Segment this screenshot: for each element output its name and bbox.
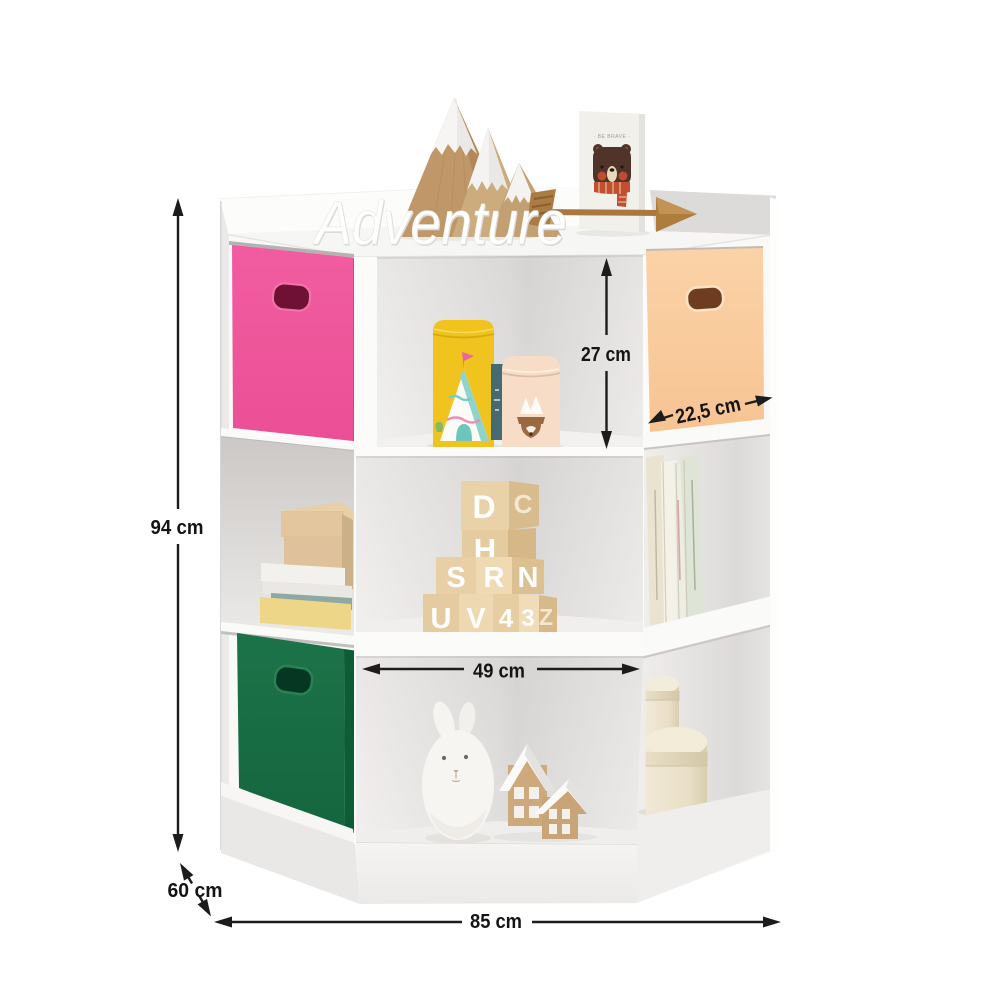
- svg-text:U: U: [431, 603, 452, 635]
- svg-text:3: 3: [521, 605, 534, 632]
- svg-text:27 cm: 27 cm: [581, 343, 631, 366]
- svg-text:C: C: [514, 489, 533, 519]
- svg-text:94 cm: 94 cm: [151, 516, 204, 539]
- svg-text:R: R: [484, 562, 505, 594]
- svg-text:85 cm: 85 cm: [470, 910, 522, 933]
- svg-text:V: V: [466, 603, 486, 635]
- svg-text:60 cm: 60 cm: [168, 879, 223, 902]
- svg-text:Z: Z: [539, 604, 553, 630]
- svg-text:D: D: [472, 489, 495, 525]
- svg-text:N: N: [518, 562, 539, 594]
- svg-text:Adventure: Adventure: [311, 189, 567, 258]
- svg-text:S: S: [446, 562, 465, 594]
- svg-text:49 cm: 49 cm: [473, 660, 525, 683]
- svg-text:4: 4: [499, 603, 514, 633]
- svg-text:· BE BRAVE ·: · BE BRAVE ·: [594, 134, 631, 140]
